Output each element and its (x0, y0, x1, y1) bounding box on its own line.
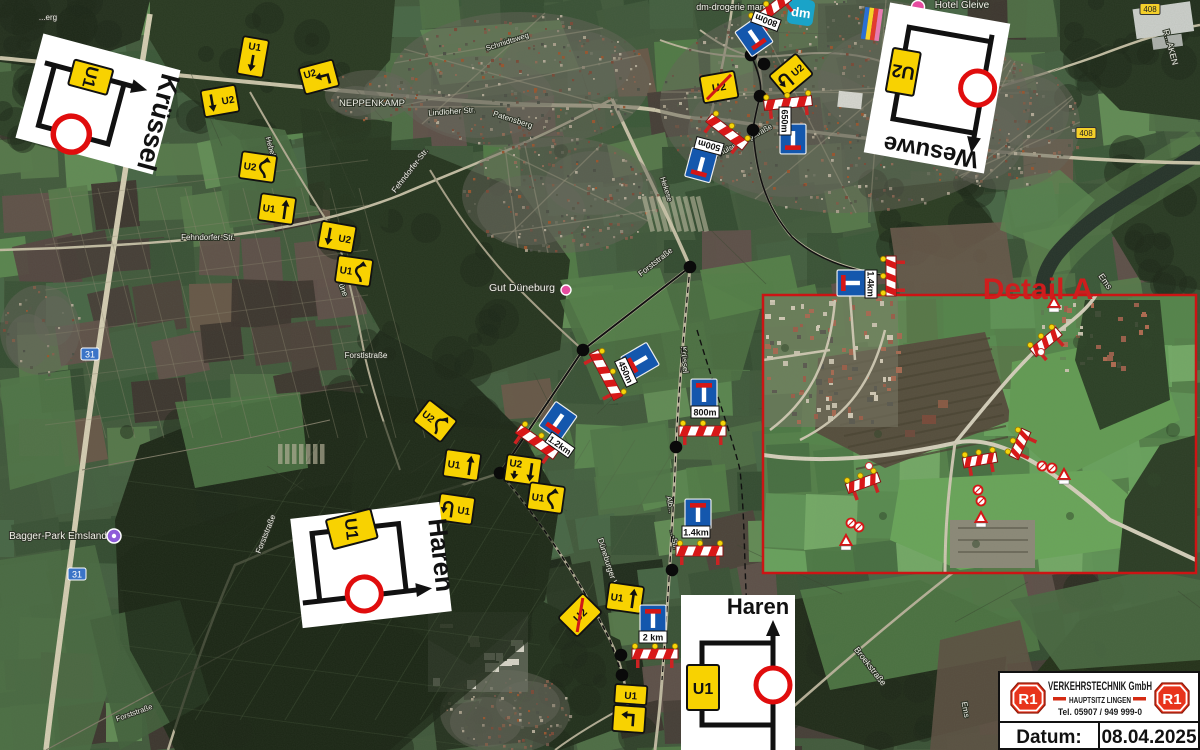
svg-text:650m: 650m (780, 109, 790, 132)
svg-text:Gut Düneburg: Gut Düneburg (489, 282, 555, 294)
svg-text:...erg: ...erg (39, 13, 57, 22)
svg-text:2 km: 2 km (643, 633, 664, 643)
svg-text:1.4km: 1.4km (683, 528, 709, 538)
svg-text:408: 408 (1143, 5, 1157, 14)
svg-text:R1: R1 (1018, 691, 1037, 708)
svg-text:Datum:: Datum: (1016, 727, 1081, 748)
svg-text:U2: U2 (509, 458, 524, 471)
svg-text:31: 31 (72, 570, 82, 580)
svg-text:Haren: Haren (727, 594, 789, 619)
svg-text:U1: U1 (447, 459, 462, 472)
svg-text:U1: U1 (624, 691, 638, 703)
svg-text:Hotel Gleive: Hotel Gleive (935, 0, 990, 11)
svg-text:NEPPENKAMP: NEPPENKAMP (339, 98, 405, 109)
svg-text:Bagger-Park Emsland: Bagger-Park Emsland (9, 531, 107, 542)
svg-text:U2: U2 (243, 161, 258, 174)
svg-text:08.04.2025: 08.04.2025 (1101, 727, 1197, 748)
svg-text:dm: dm (790, 4, 811, 22)
svg-text:U1: U1 (262, 203, 277, 216)
svg-text:U2: U2 (221, 94, 236, 107)
svg-text:U1: U1 (457, 505, 472, 518)
svg-text:U1: U1 (610, 592, 625, 605)
svg-text:dm-drogerie markt: dm-drogerie markt (696, 2, 770, 12)
svg-text:Detail A: Detail A (983, 273, 1094, 306)
svg-text:Forstlstraße: Forstlstraße (345, 351, 388, 360)
svg-text:VERKEHRSTECHNIK GmbH: VERKEHRSTECHNIK GmbH (1048, 681, 1152, 693)
svg-text:R1: R1 (1162, 691, 1181, 708)
svg-text:Tel. 05907 / 949 999-0: Tel. 05907 / 949 999-0 (1058, 707, 1142, 717)
svg-text:408: 408 (1079, 129, 1093, 138)
svg-text:U1: U1 (531, 492, 546, 505)
svg-text:U1: U1 (339, 265, 354, 278)
svg-text:800m: 800m (693, 408, 716, 418)
svg-text:HAUPTSITZ LINGEN: HAUPTSITZ LINGEN (1069, 696, 1131, 705)
svg-text:U2: U2 (337, 233, 352, 246)
svg-text:31: 31 (85, 350, 95, 360)
svg-text:U2: U2 (890, 60, 916, 84)
svg-text:U1: U1 (693, 681, 714, 698)
svg-text:Fehndorfer-Str.: Fehndorfer-Str. (181, 233, 235, 242)
svg-text:U1: U1 (247, 41, 262, 54)
svg-text:1.4km: 1.4km (866, 271, 876, 297)
svg-text:U1: U1 (341, 517, 362, 541)
